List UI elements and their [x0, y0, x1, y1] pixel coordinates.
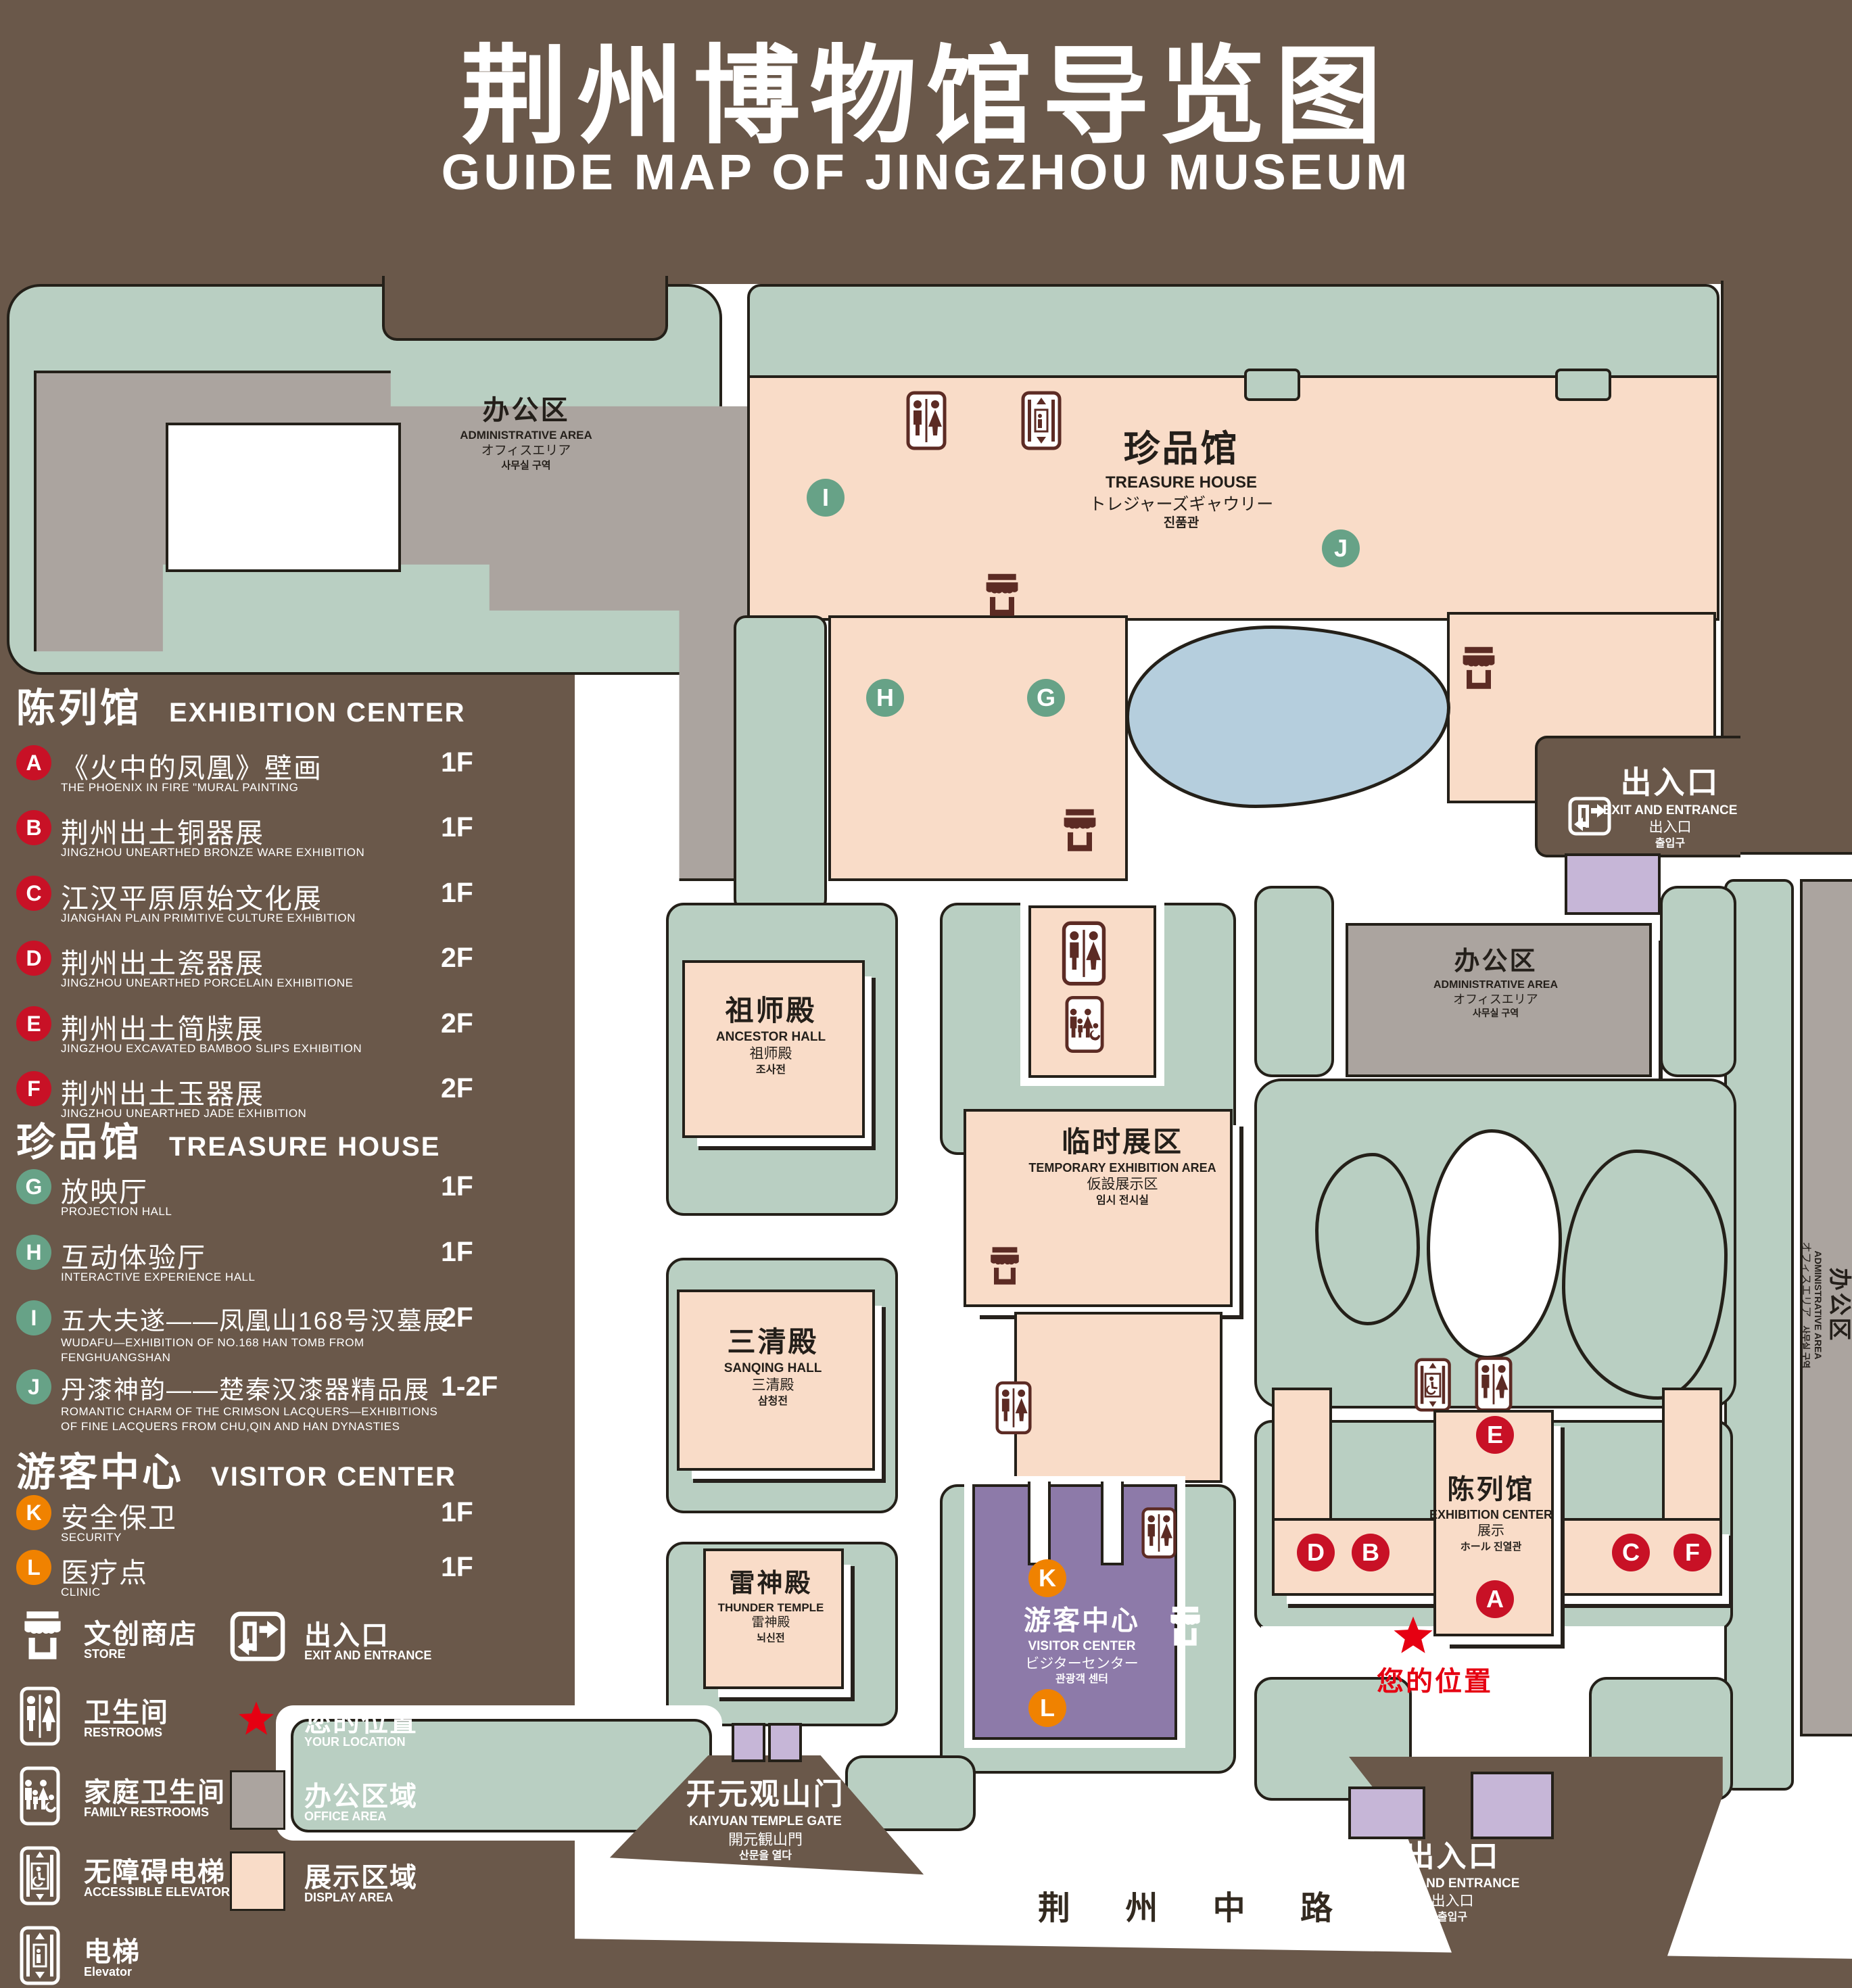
restroom-icon [1062, 921, 1106, 986]
lawn-treasure-west [734, 615, 827, 912]
map-marker-J: J [1322, 529, 1360, 567]
legend-item-d: D 荆州出土瓷器展 JINGZHOU UNEARTHED PORCELAIN E… [16, 941, 518, 1005]
exit-bottom-label: 出入口 EXIT AND ENTRANCE 出入口 출입구 [1385, 1838, 1520, 1924]
gate-pillar [768, 1723, 802, 1762]
legend-symbol-family-restrooms: 家庭卫生间 FAMILY RESTROOMS [16, 1766, 246, 1828]
gate-building-top-right [1565, 853, 1661, 915]
visitor-center-label: 游客中心 VISITOR CENTER ビジターセンター 관광객 센터 [1024, 1604, 1140, 1687]
legend-item-h: H 互动体验厅 INTERACTIVE EXPERIENCE HALL 1F [16, 1235, 518, 1300]
treasure-notch-2 [1555, 369, 1611, 401]
legend-symbol-accessible-elevator: 无障碍电梯 ACCESSIBLE ELEVATOR [16, 1846, 246, 1908]
exhibition-center-west-wing [1272, 1388, 1332, 1528]
store-icon [1168, 1601, 1202, 1654]
accessible-elevator-icon [1413, 1358, 1452, 1412]
family-restroom-icon [1065, 995, 1104, 1054]
kaiyuan-gate-label: 开元观山门 KAIYUAN TEMPLE GATE 開元観山門 산문을 열다 [686, 1776, 845, 1863]
lawn-admin-right-west [1254, 886, 1334, 1077]
marker-k: K [16, 1495, 51, 1530]
legend-item-a: A 《火中的凤凰》壁画 THE PHOENIX IN FIRE "MURAL P… [16, 745, 518, 810]
guide-map-poster: { "title":{"cn":"荆州博物馆导览图","en":"GUIDE M… [0, 0, 1852, 1980]
marker-g: G [16, 1169, 51, 1204]
exit-icon [230, 1609, 285, 1663]
map-marker-E: E [1476, 1416, 1514, 1454]
legend-item-c: C 江汉平原原始文化展 JIANGHAN PLAIN PRIMITIVE CUL… [16, 876, 518, 941]
legend-item-i: I 五大夫遂——凤凰山168号汉墓展 WUDAFU—EXHIBITION OF … [16, 1300, 518, 1365]
marker-i: I [16, 1300, 51, 1335]
admin-right-label: 办公区 ADMINISTRATIVE AREA オフィスエリア 사무실 구역 [1433, 945, 1558, 1020]
map-marker-A: A [1476, 1580, 1514, 1618]
legend-section-exhibition-header: 陈列馆EXHIBITION CENTER [16, 676, 466, 733]
restroom-icon [1141, 1507, 1177, 1559]
temporary-exhibition-label: 临时展区 TEMPORARY EXHIBITION AREA 仮設展示区 임시 … [1028, 1124, 1216, 1208]
restroom-icon [1473, 1356, 1515, 1412]
legend-item-e: E 荆州出土简牍展 JINGZHOU EXCAVATED BAMBOO SLIP… [16, 1006, 518, 1071]
marker-c: C [16, 876, 51, 911]
marker-d: D [16, 941, 51, 976]
exit-building [1348, 1786, 1425, 1839]
legend-item-j: J 丹漆神韵——楚秦汉漆器精品展 ROMANTIC CHARM OF THE C… [16, 1369, 518, 1434]
map-marker-B: B [1352, 1534, 1390, 1571]
exit-building [1471, 1772, 1554, 1839]
map-marker-G: G [1027, 679, 1065, 717]
accessible-elevator-icon [16, 1846, 64, 1906]
admin-top-left-label: 办公区 ADMINISTRATIVE AREA オフィスエリア 사무실 구역 [460, 394, 592, 472]
store-icon [1461, 642, 1497, 696]
visitor-center-notch [1028, 1482, 1051, 1565]
restroom-icon [16, 1686, 64, 1746]
ancestor-hall-label: 祖师殿 ANCESTOR HALL 祖师殿 조사전 [716, 993, 826, 1077]
map-marker-D: D [1297, 1534, 1335, 1571]
thunder-temple-label: 雷神殿 THUNDER TEMPLE 雷神殿 뇌신전 [718, 1567, 824, 1644]
map-marker-L: L [1028, 1689, 1066, 1727]
marker-e: E [16, 1006, 51, 1041]
legend-panel: 陈列馆EXHIBITION CENTER A 《火中的凤凰》壁画 THE PHO… [0, 669, 554, 1980]
store-icon [1062, 805, 1098, 859]
exhibition-center-label: 陈列馆 EXHIBITION CENTER 展示 ホール 진열관 [1429, 1473, 1552, 1553]
sanqing-hall-label: 三清殿 SANQING HALL 三清殿 삼청전 [724, 1324, 822, 1409]
treasure-house-label: 珍品馆 TREASURE HOUSE トレジャーズギャウリー 진품관 [1089, 426, 1274, 531]
garden-island-east [1562, 1150, 1728, 1400]
exhibition-center-east-wing [1662, 1388, 1722, 1528]
map-marker-I: I [807, 479, 845, 517]
visitor-center-notch [1101, 1482, 1124, 1565]
elevator-icon [1021, 391, 1062, 450]
display-area-swatch [230, 1851, 285, 1911]
treasure-notch-1 [1244, 369, 1300, 401]
marker-a: A [16, 745, 51, 780]
restroom-icon [995, 1378, 1032, 1438]
store-icon [984, 569, 1020, 623]
brown-corner-top-right [1721, 281, 1852, 855]
store-icon [16, 1608, 69, 1666]
brown-notch-top [382, 276, 668, 341]
legend-symbol-elevator: 电梯 Elevator [16, 1926, 219, 1988]
legend-section-visitor-header: 游客中心VISITOR CENTER [16, 1440, 456, 1497]
marker-l: L [16, 1550, 51, 1585]
legend-symbol-exit: 出入口 EXIT AND ENTRANCE [230, 1609, 487, 1672]
legend-section-treasure-header: 珍品馆TREASURE HOUSE [16, 1110, 440, 1167]
your-location-star-icon [1392, 1615, 1435, 1658]
road-label: 荆 州 中 路 [1038, 1888, 1356, 1929]
your-location-label: 您的位置 [1377, 1665, 1493, 1699]
map-marker-H: H [866, 679, 904, 717]
legend-item-b: B 荆州出土铜器展 JINGZHOU UNEARTHED BRONZE WARE… [16, 810, 518, 875]
legend-item-g: G 放映厅 PROJECTION HALL 1F [16, 1169, 518, 1234]
family-restroom-icon [16, 1766, 64, 1826]
map-marker-K: K [1028, 1559, 1066, 1597]
legend-symbol-store: 文创商店 STORE [16, 1608, 219, 1670]
store-icon [989, 1243, 1021, 1292]
your-location-star-icon [237, 1700, 276, 1739]
elevator-icon [16, 1926, 64, 1985]
exit-top-label: 出入口 EXIT AND ENTRANCE 出入口 출입구 [1603, 763, 1738, 851]
marker-b: B [16, 810, 51, 845]
map-marker-F: F [1673, 1534, 1711, 1571]
restroom-icon [906, 391, 947, 450]
marker-h: H [16, 1235, 51, 1270]
legend-symbol-display-area: 展示区域 DISPLAY AREA [230, 1851, 487, 1914]
marker-j: J [16, 1369, 51, 1404]
admin-strip-label: 办公区 ADMINISTRATIVE AREA オフィスエリア 사무실 구역 [1798, 1241, 1852, 1369]
office-area-swatch [230, 1770, 285, 1830]
legend-symbol-restrooms: 卫生间 RESTROOMS [16, 1686, 219, 1749]
temporary-exhibition-annex [1014, 1312, 1222, 1483]
admin-courtyard [166, 423, 401, 572]
lawn-admin-right-east [1660, 886, 1736, 1077]
legend-item-l: L 医疗点 CLINIC 1F [16, 1550, 518, 1615]
legend-symbol-office-area: 办公区域 OFFICE AREA [230, 1770, 487, 1832]
map-marker-C: C [1612, 1534, 1650, 1571]
gate-pillar [732, 1723, 765, 1762]
legend-symbol-your-location: 您的位置 YOUR LOCATION [230, 1696, 487, 1758]
marker-f: F [16, 1071, 51, 1106]
